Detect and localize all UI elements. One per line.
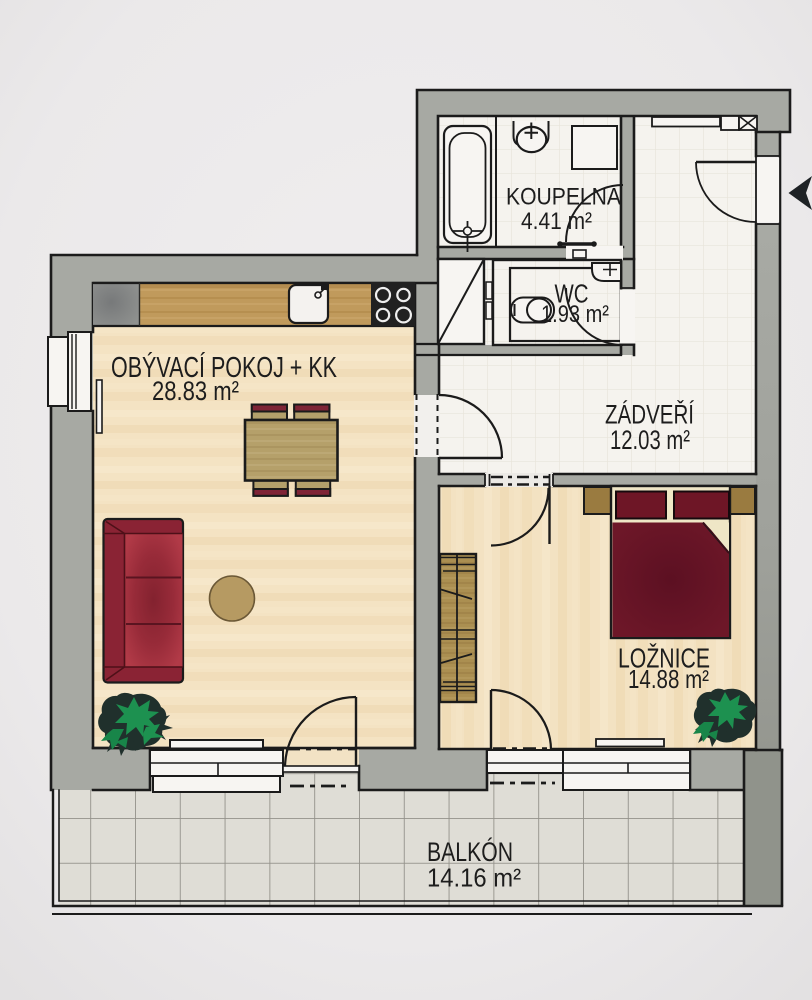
- svg-text:14.16 m²: 14.16 m²: [427, 863, 521, 893]
- svg-text:14.88 m²: 14.88 m²: [628, 664, 709, 694]
- svg-text:KOUPELNA: KOUPELNA: [506, 184, 621, 211]
- svg-text:1.93 m²: 1.93 m²: [541, 301, 609, 328]
- svg-text:12.03 m²: 12.03 m²: [610, 425, 690, 455]
- svg-text:4.41 m²: 4.41 m²: [521, 208, 592, 235]
- svg-text:28.83 m²: 28.83 m²: [152, 376, 239, 406]
